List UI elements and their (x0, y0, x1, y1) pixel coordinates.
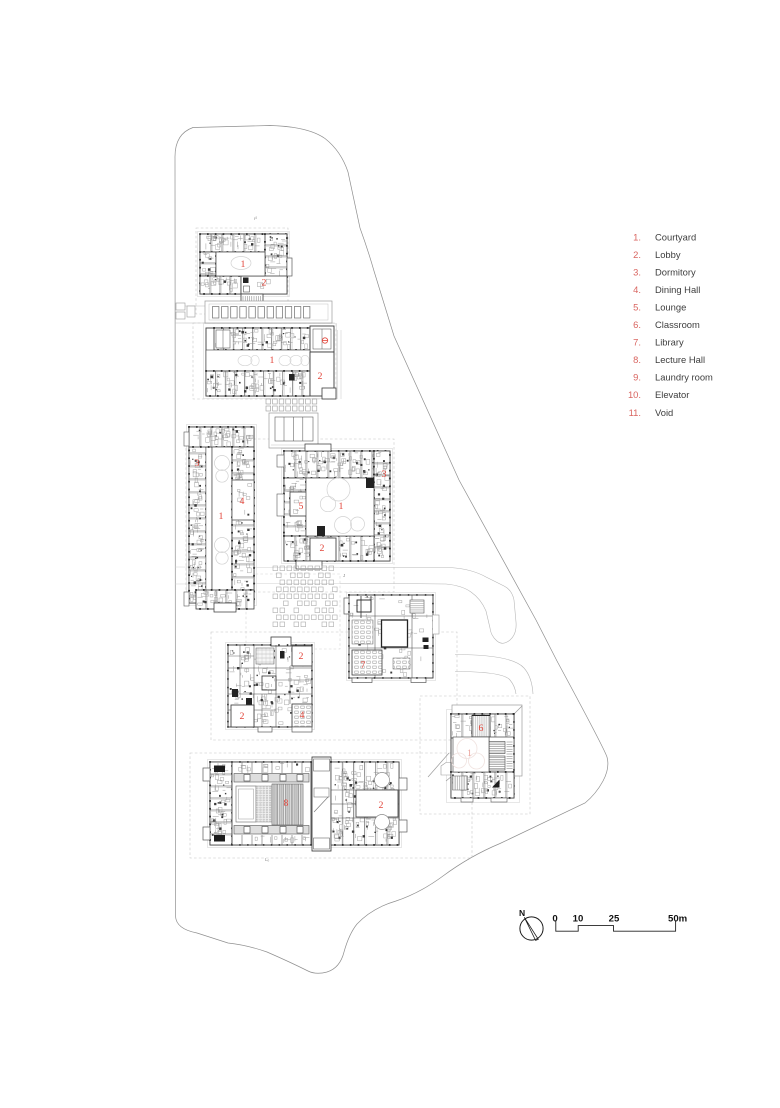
svg-text:Void: Void (655, 407, 673, 418)
svg-text:2: 2 (318, 371, 323, 382)
svg-text:1: 1 (467, 748, 472, 759)
svg-text:1: 1 (241, 259, 246, 270)
svg-text:1: 1 (339, 501, 344, 512)
svg-text:10: 10 (573, 914, 584, 925)
svg-text:3.: 3. (633, 266, 641, 277)
svg-text:6: 6 (479, 723, 484, 734)
svg-text:6.: 6. (633, 319, 641, 330)
svg-text:Classroom: Classroom (655, 319, 700, 330)
svg-text:25: 25 (609, 914, 620, 925)
svg-text:3: 3 (195, 458, 200, 469)
svg-text:Dining Hall: Dining Hall (655, 284, 700, 295)
svg-text:2: 2 (262, 278, 267, 289)
svg-text:N: N (519, 908, 525, 918)
svg-text:9.: 9. (633, 372, 641, 383)
svg-text:50m: 50m (668, 914, 687, 925)
svg-text:Dormitory: Dormitory (655, 266, 696, 277)
svg-text:1: 1 (219, 511, 224, 522)
svg-text:Lecture Hall: Lecture Hall (655, 354, 705, 365)
svg-text:Lₒ: Lₒ (265, 857, 270, 862)
svg-text:2.: 2. (633, 249, 641, 260)
svg-text:7.: 7. (633, 337, 641, 348)
svg-text:r²: r² (254, 216, 257, 221)
svg-text:4.: 4. (633, 284, 641, 295)
svg-text:Lobby: Lobby (655, 249, 681, 260)
svg-text:7: 7 (361, 660, 366, 671)
svg-text:J: J (343, 573, 345, 578)
svg-text:8.: 8. (633, 354, 641, 365)
svg-text:Courtyard: Courtyard (655, 231, 696, 242)
svg-text:2: 2 (240, 711, 245, 722)
svg-text:11.: 11. (629, 407, 641, 418)
svg-text:8: 8 (284, 798, 289, 809)
svg-text:1: 1 (270, 355, 275, 366)
svg-text:2: 2 (299, 651, 304, 662)
svg-text:1.: 1. (633, 231, 641, 242)
svg-text:2: 2 (379, 800, 384, 811)
svg-text:Laundry room: Laundry room (655, 372, 713, 383)
svg-text:Lounge: Lounge (655, 302, 686, 313)
svg-text:0: 0 (552, 914, 557, 925)
svg-text:4: 4 (240, 496, 245, 507)
svg-text:Elevator: Elevator (655, 389, 689, 400)
svg-text:5.: 5. (633, 302, 641, 313)
svg-text:10.: 10. (628, 389, 641, 400)
svg-text:4: 4 (300, 710, 305, 721)
svg-text:3: 3 (382, 469, 387, 480)
svg-text:5: 5 (299, 501, 304, 512)
svg-text:2: 2 (320, 543, 325, 554)
svg-text:Library: Library (655, 337, 684, 348)
